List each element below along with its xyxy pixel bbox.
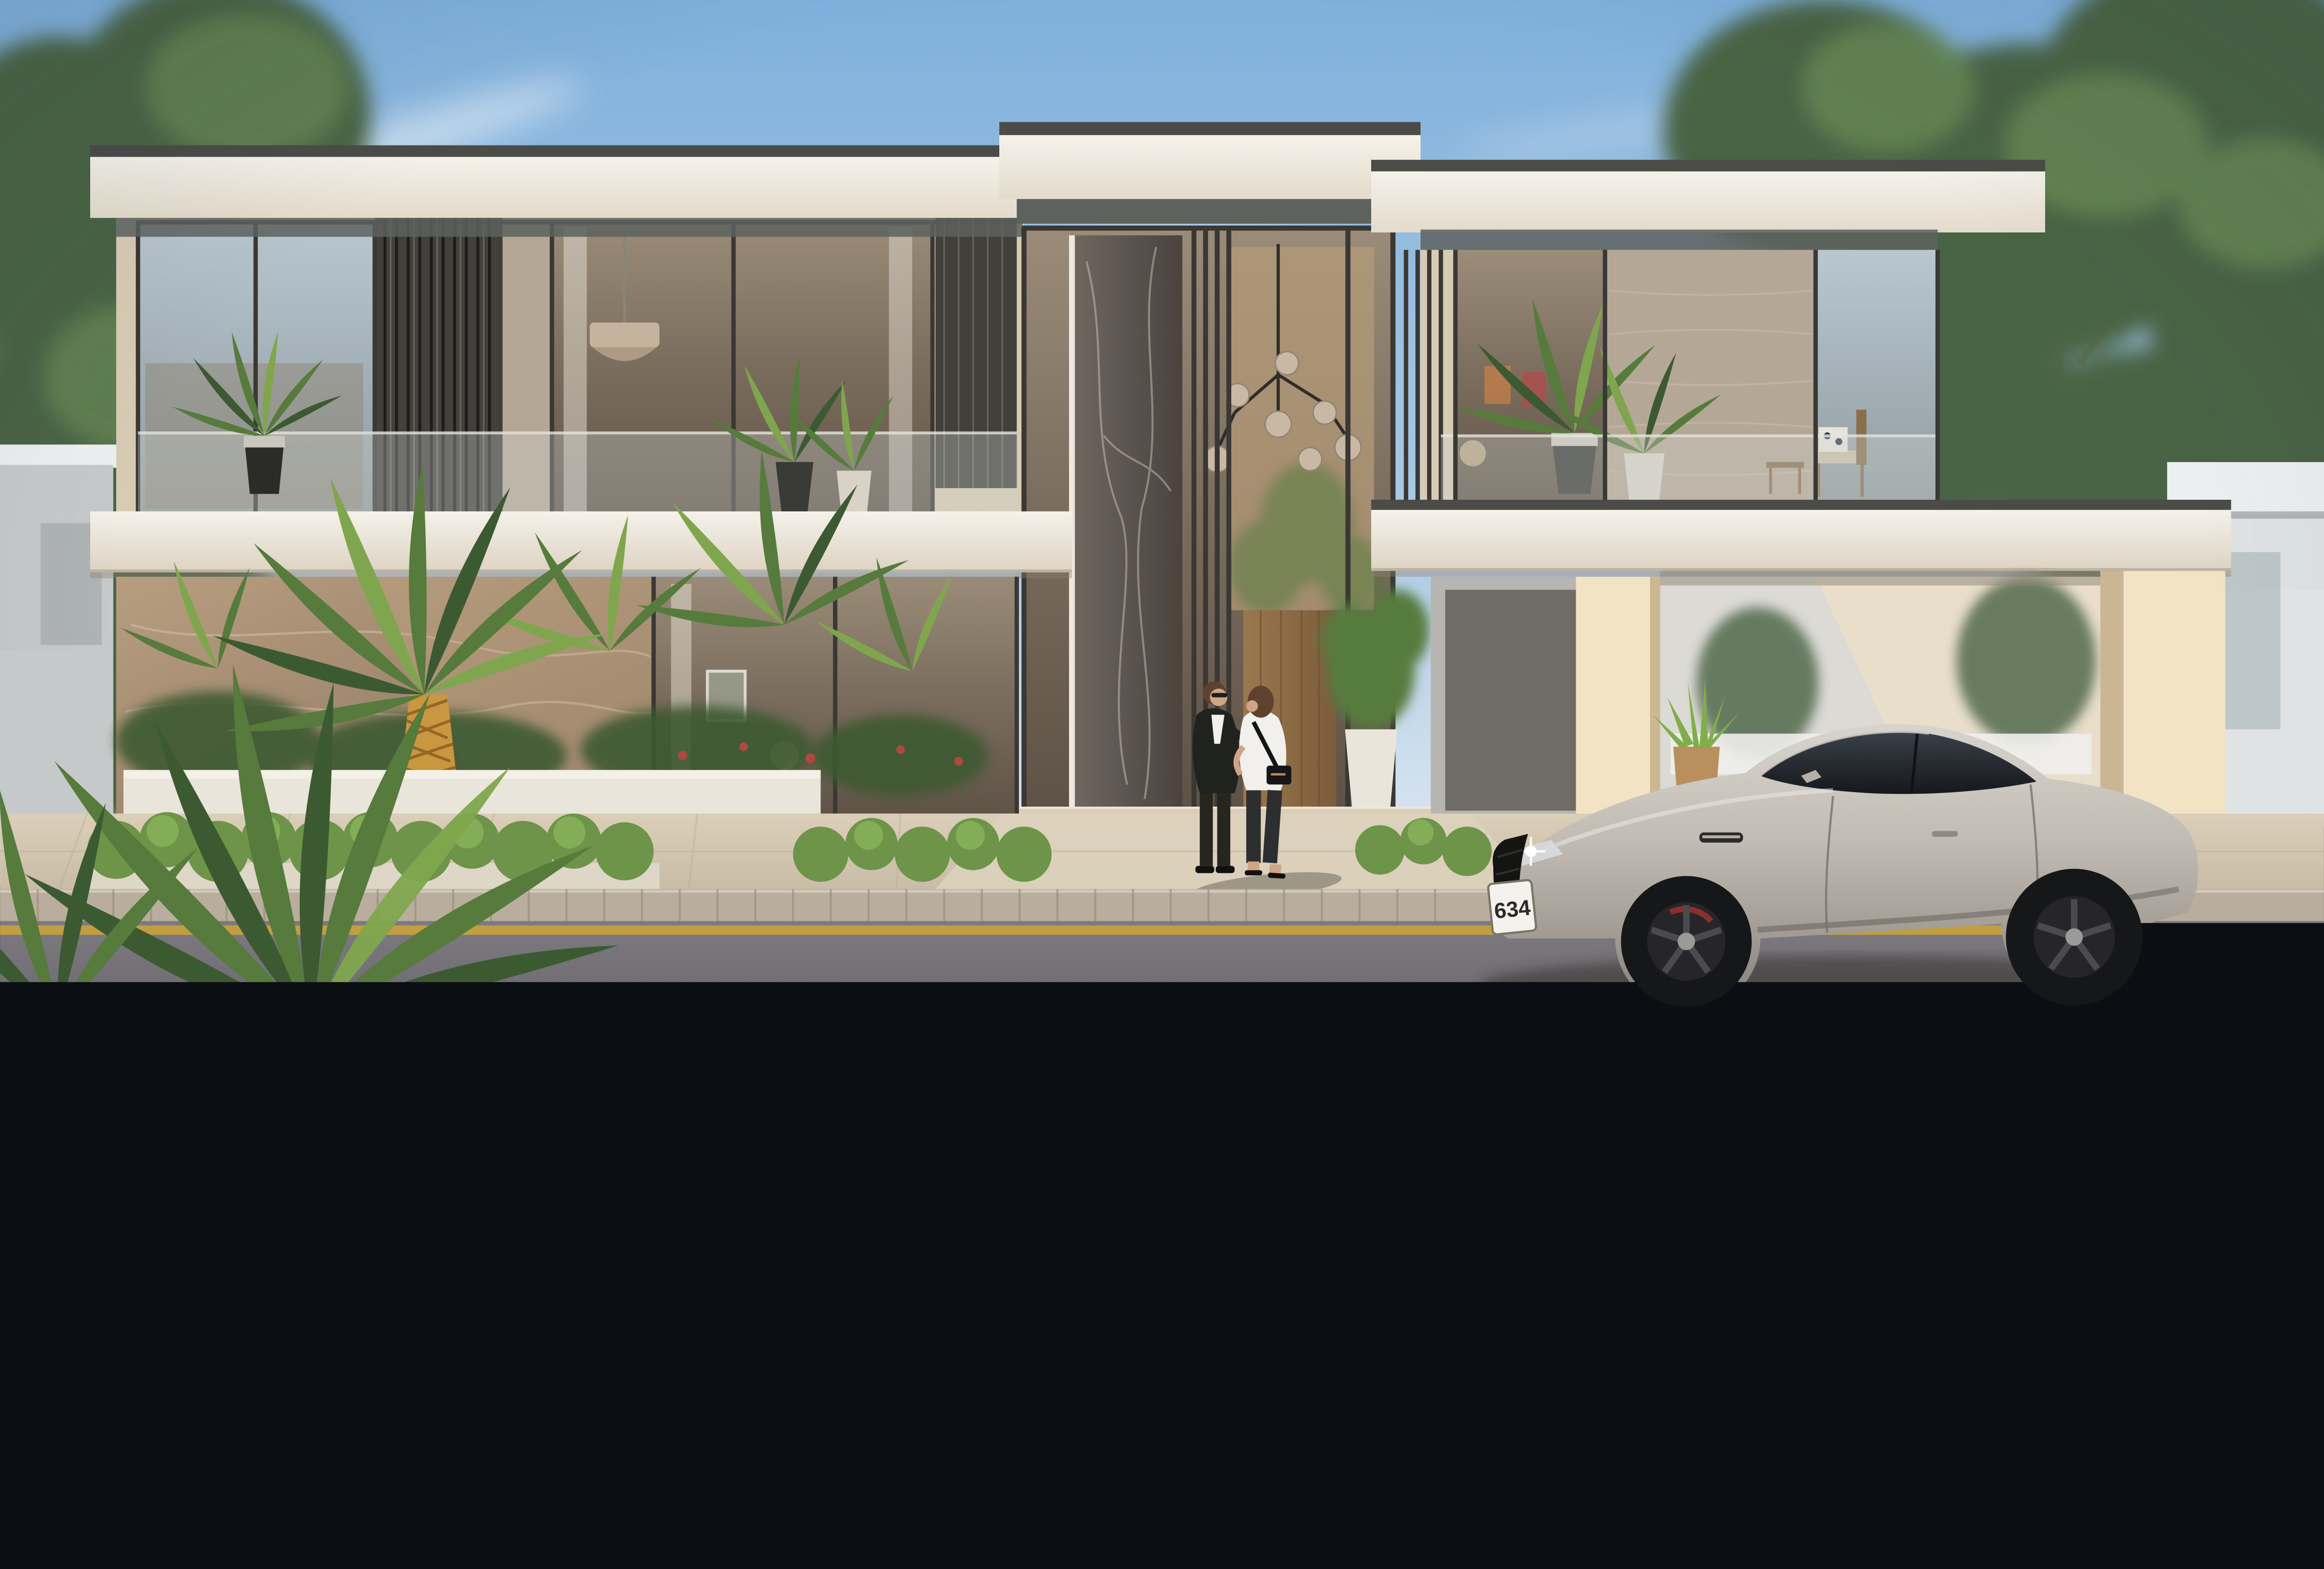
render-viewport: 634	[0, 0, 2324, 1308]
vignette	[0, 0, 2324, 1308]
villa-render: 634	[0, 0, 2324, 1308]
